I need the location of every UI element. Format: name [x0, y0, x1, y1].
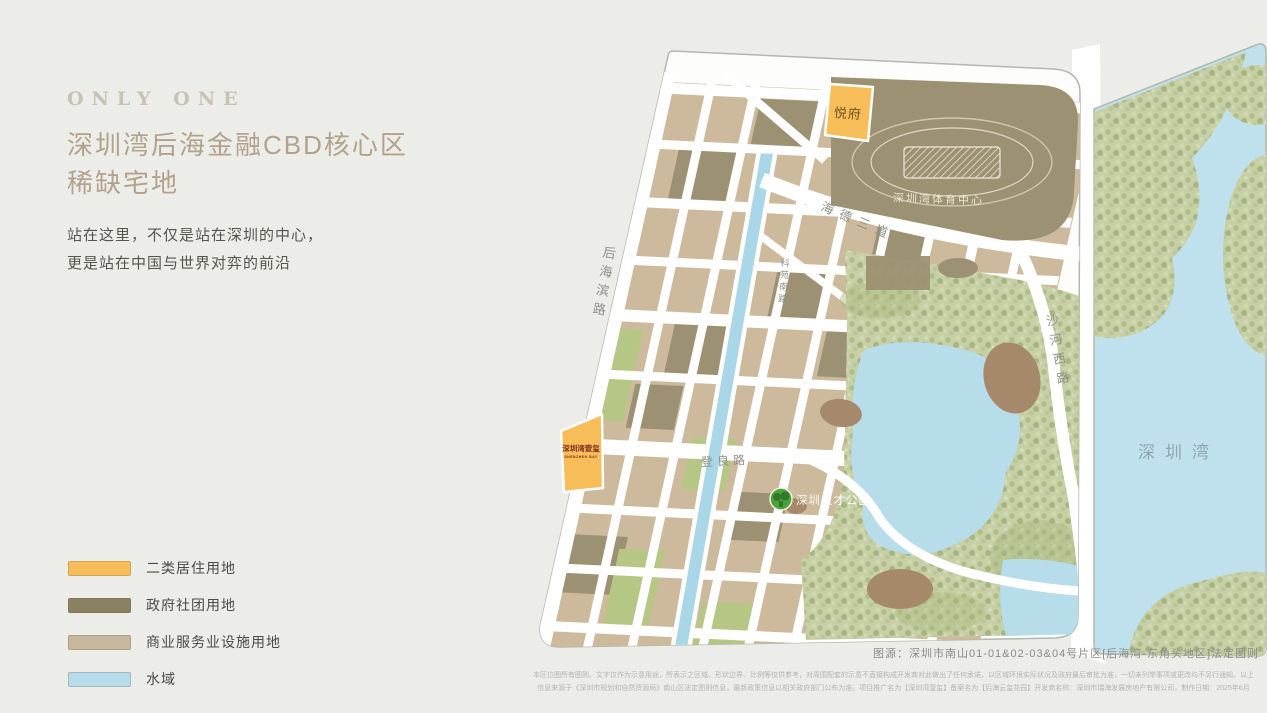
legal-disclaimer-line1: 本区位图所有图则、文字仅作为示意用途，所表示之区域、形状边界、比例等仅供参考，对…: [523, 669, 1264, 682]
yuefu-parcel-label: 悦府: [833, 102, 862, 123]
legend-swatch-residential: [68, 561, 131, 576]
legend-label: 二类居住用地: [146, 558, 236, 578]
page-title-line1: 深圳湾后海金融CBD核心区: [67, 126, 497, 164]
sports-center-label: 深圳湾体育中心: [893, 189, 985, 208]
page-subtitle: 站在这里，不仅是站在深圳的中心， 更是站在中国与世界对弈的前沿: [67, 222, 497, 278]
legend-swatch-government: [68, 598, 131, 613]
legend-swatch-water: [68, 672, 131, 687]
page-title-line2: 稀缺宅地: [67, 164, 497, 202]
legend-label: 政府社团用地: [146, 595, 236, 615]
intro-block: ONLY ONE 深圳湾后海金融CBD核心区 稀缺宅地 站在这里，不仅是站在深圳…: [67, 88, 497, 278]
legend-item-commercial: 商业服务业设施用地: [68, 632, 281, 652]
project-parcel-logo-text: 深圳湾壹玺: [556, 444, 606, 453]
map-legend: 二类居住用地 政府社团用地 商业服务业设施用地 水域: [68, 558, 281, 706]
legend-label: 水域: [146, 669, 176, 689]
talent-park-icon: [770, 488, 792, 510]
shenzhen-bay-label: 深圳湾: [1138, 438, 1219, 463]
legal-disclaimer: 本区位图所有图则、文字仅作为示意用途，所表示之区域、形状边界、比例等仅供参考，对…: [523, 669, 1264, 695]
eyebrow-text: ONLY ONE: [67, 88, 497, 110]
project-parcel-logo-subtext: SHENZHEN BAY: [556, 453, 606, 462]
map-source-note: 图源：深圳市南山01-01&02-03&04号片区[后海湾-东角头地区]法定图则: [873, 645, 1259, 661]
legend-item-water: 水域: [68, 669, 281, 689]
page-subtitle-line2: 更是站在中国与世界对弈的前沿: [67, 250, 497, 278]
legend-item-government: 政府社团用地: [68, 595, 281, 615]
page-subtitle-line1: 站在这里，不仅是站在深圳的中心，: [67, 222, 497, 250]
project-parcel-logo: 深圳湾壹玺 SHENZHEN BAY: [556, 444, 606, 462]
planning-map: [530, 0, 1267, 713]
page-title: 深圳湾后海金融CBD核心区 稀缺宅地: [67, 126, 497, 202]
legend-swatch-commercial: [68, 635, 131, 650]
legal-disclaimer-line2: 信息来源于《深圳市规划和自然资源局》南山区法定图则信息，最新政策信息以相关政府部…: [523, 682, 1264, 695]
legend-label: 商业服务业设施用地: [146, 632, 281, 652]
dengliang-road-label: 登良路: [701, 451, 750, 470]
talent-park-label: 深圳人才公园: [796, 492, 871, 508]
legend-item-residential: 二类居住用地: [68, 558, 281, 578]
